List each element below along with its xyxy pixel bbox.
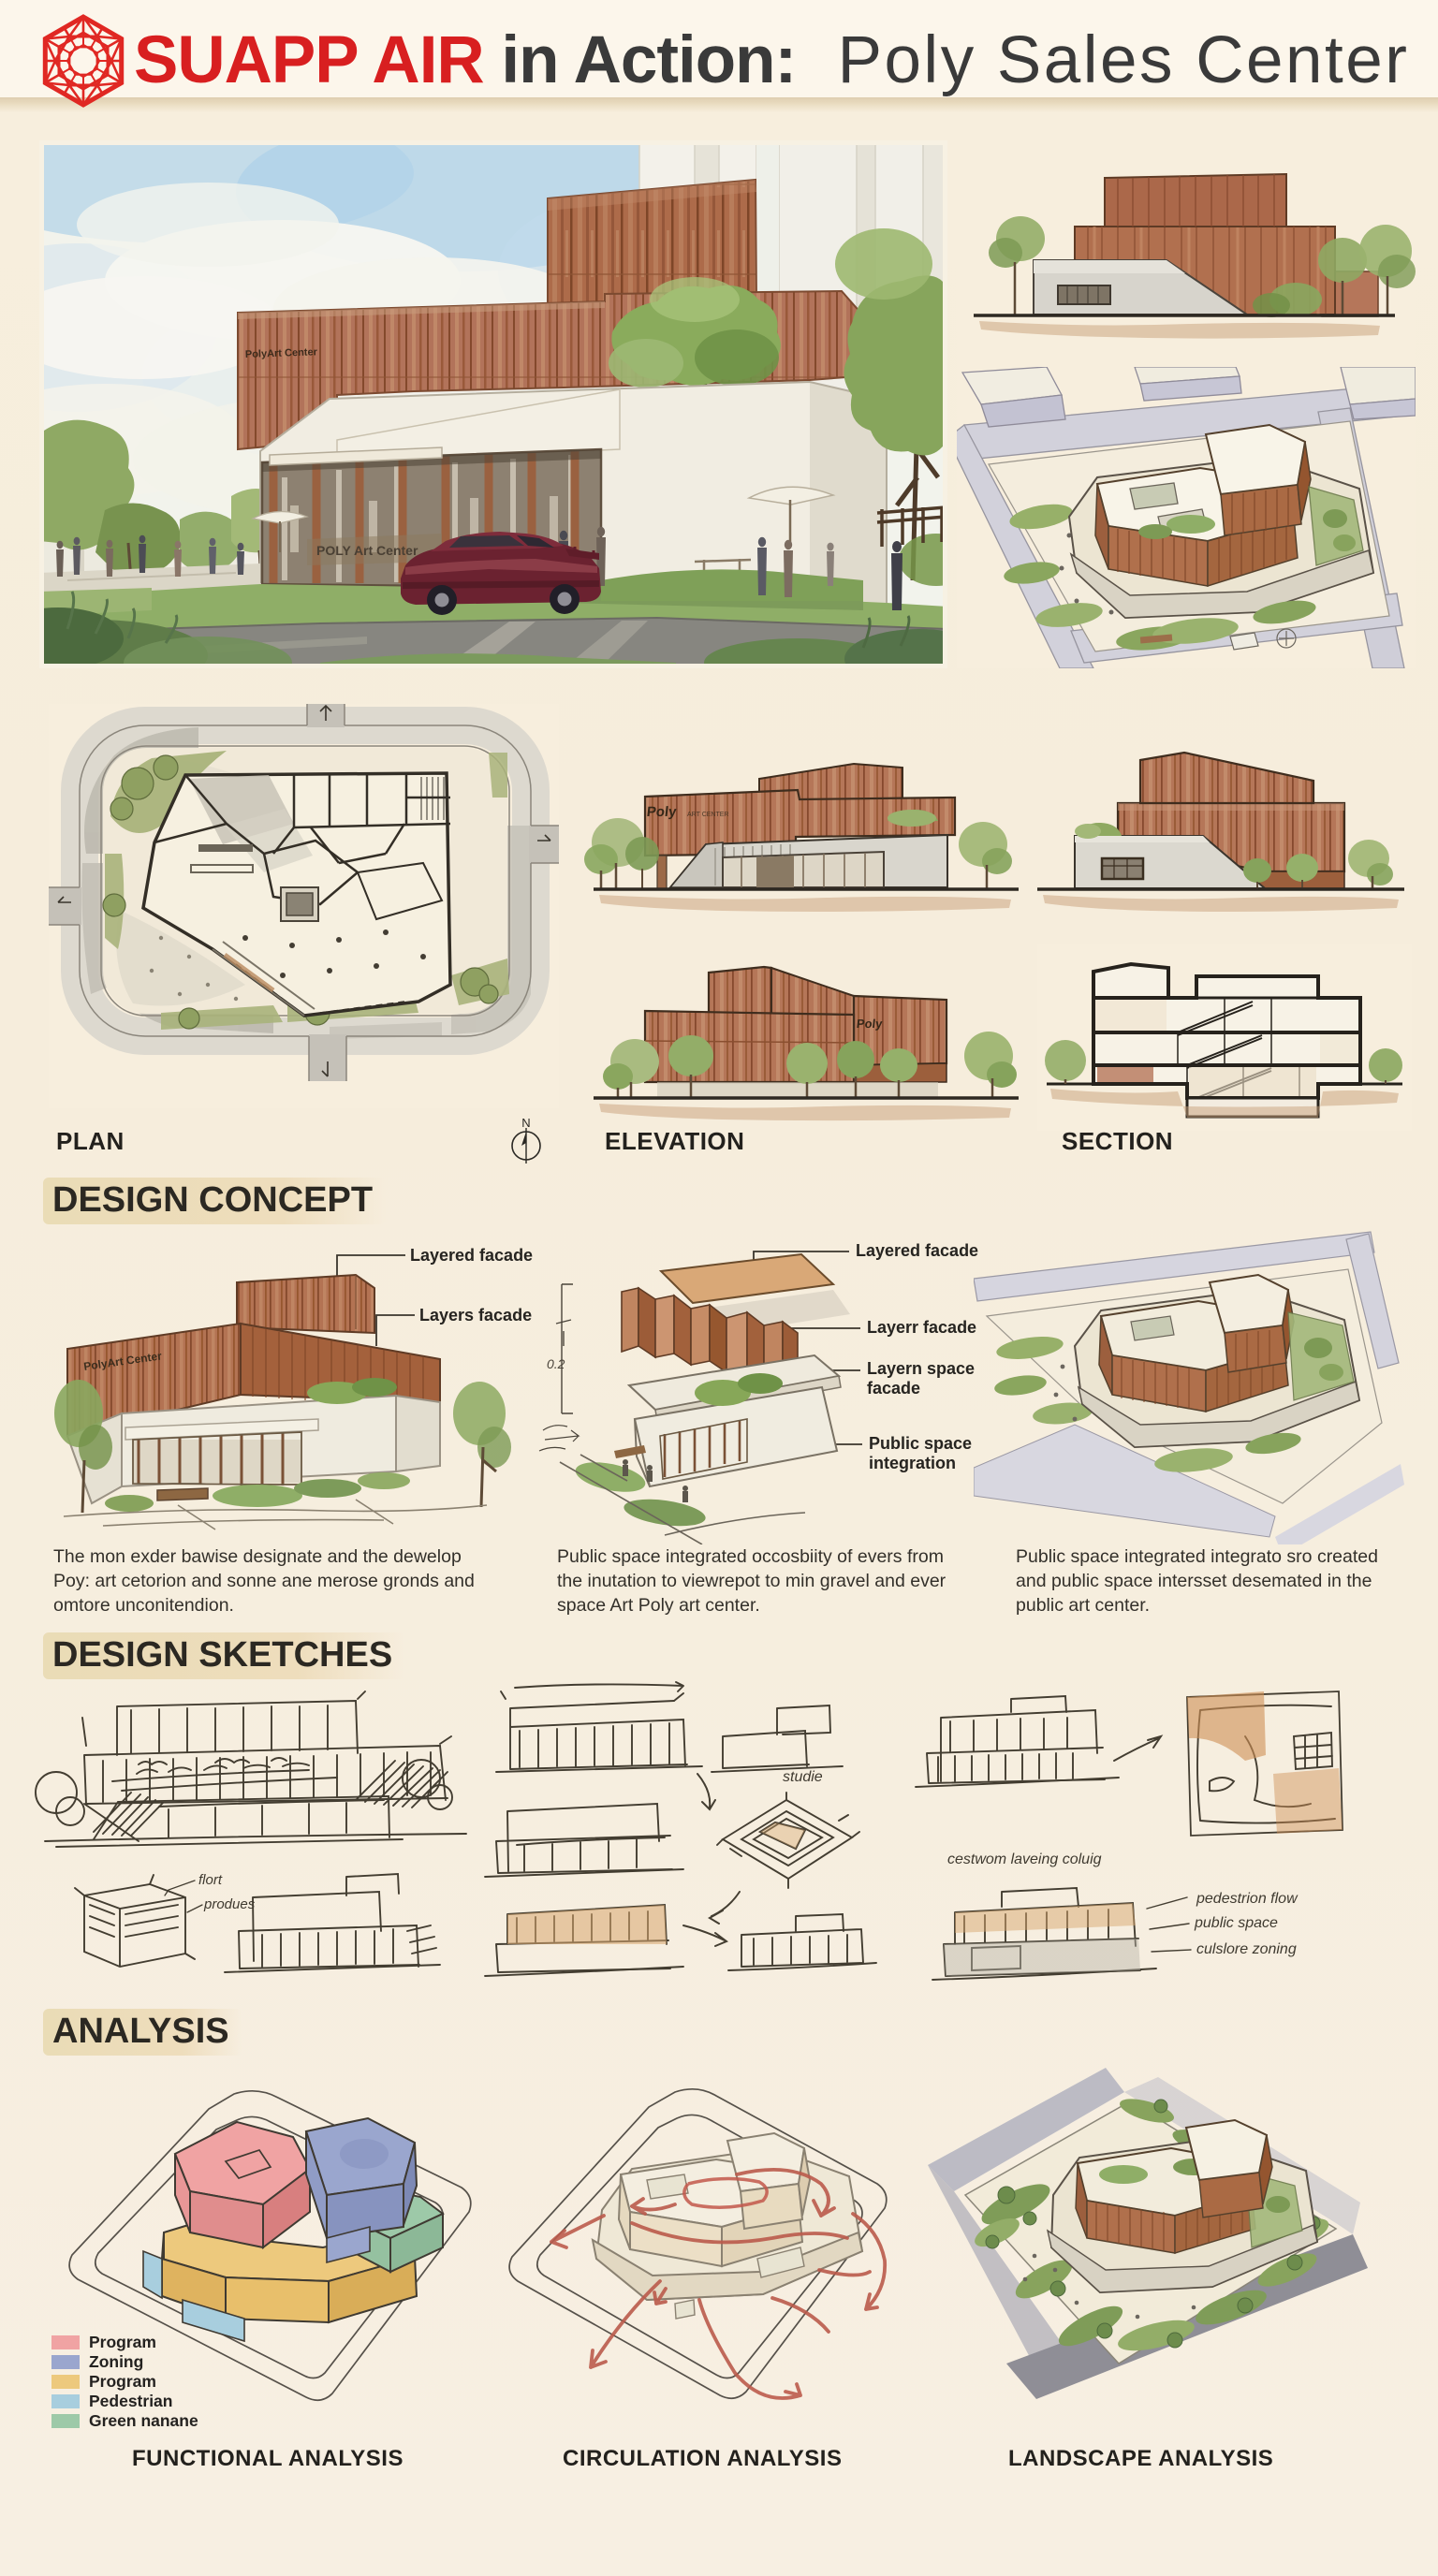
svg-text:public space: public space xyxy=(1194,1915,1278,1931)
svg-text:Poly: Poly xyxy=(646,804,678,820)
svg-text:Layern space: Layern space xyxy=(867,1359,975,1378)
svg-text:POLY Art Center: POLY Art Center xyxy=(316,543,418,558)
svg-text:ART CENTER: ART CENTER xyxy=(687,812,728,818)
svg-text:flort: flort xyxy=(198,1872,223,1888)
svg-text:culslore zoning: culslore zoning xyxy=(1196,1941,1297,1957)
svg-text:Layers facade: Layers facade xyxy=(419,1306,532,1325)
svg-text:produes: produes xyxy=(203,1896,256,1912)
svg-text:Poly: Poly xyxy=(856,1017,884,1031)
svg-text:Layered facade: Layered facade xyxy=(410,1246,533,1265)
svg-text:Layerr facade: Layerr facade xyxy=(867,1318,976,1337)
svg-text:Public space: Public space xyxy=(869,1434,972,1453)
svg-text:integration: integration xyxy=(869,1454,956,1472)
svg-text:Layered facade: Layered facade xyxy=(856,1241,978,1260)
svg-text:cestwom laveing coluig: cestwom laveing coluig xyxy=(947,1851,1102,1867)
svg-text:pedestrion flow: pedestrion flow xyxy=(1196,1891,1299,1907)
svg-text:studie: studie xyxy=(783,1769,823,1785)
svg-text:N: N xyxy=(521,1116,530,1130)
svg-text:0.2: 0.2 xyxy=(547,1356,565,1371)
svg-text:facade: facade xyxy=(867,1379,920,1398)
